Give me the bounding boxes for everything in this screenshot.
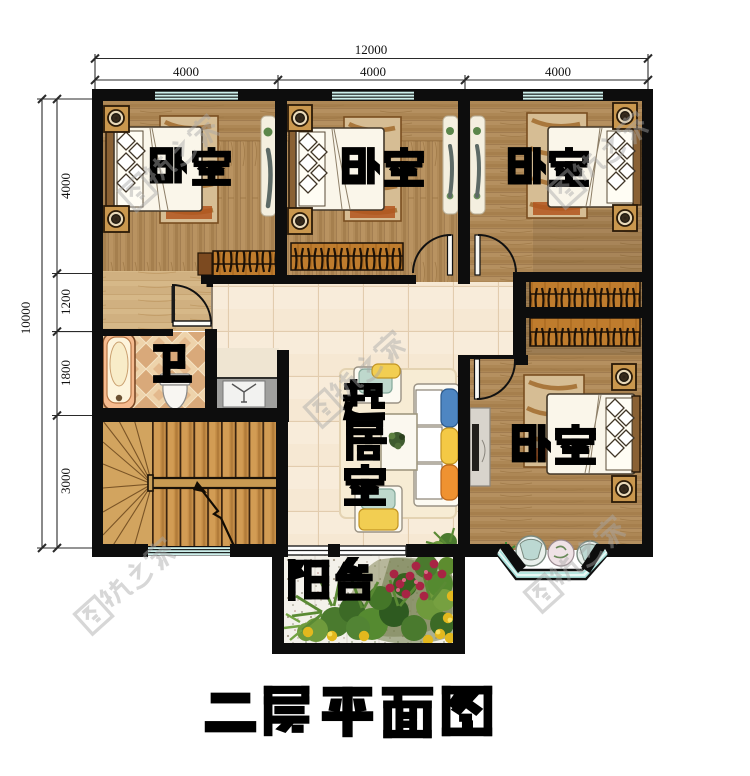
- svg-text:1800: 1800: [58, 360, 73, 386]
- svg-text:4000: 4000: [173, 64, 199, 79]
- svg-text:4000: 4000: [58, 173, 73, 199]
- svg-text:12000: 12000: [355, 42, 388, 57]
- svg-text:3000: 3000: [58, 468, 73, 494]
- svg-text:10000: 10000: [18, 302, 33, 335]
- svg-text:4000: 4000: [545, 64, 571, 79]
- svg-text:1200: 1200: [58, 289, 73, 315]
- svg-text:4000: 4000: [360, 64, 386, 79]
